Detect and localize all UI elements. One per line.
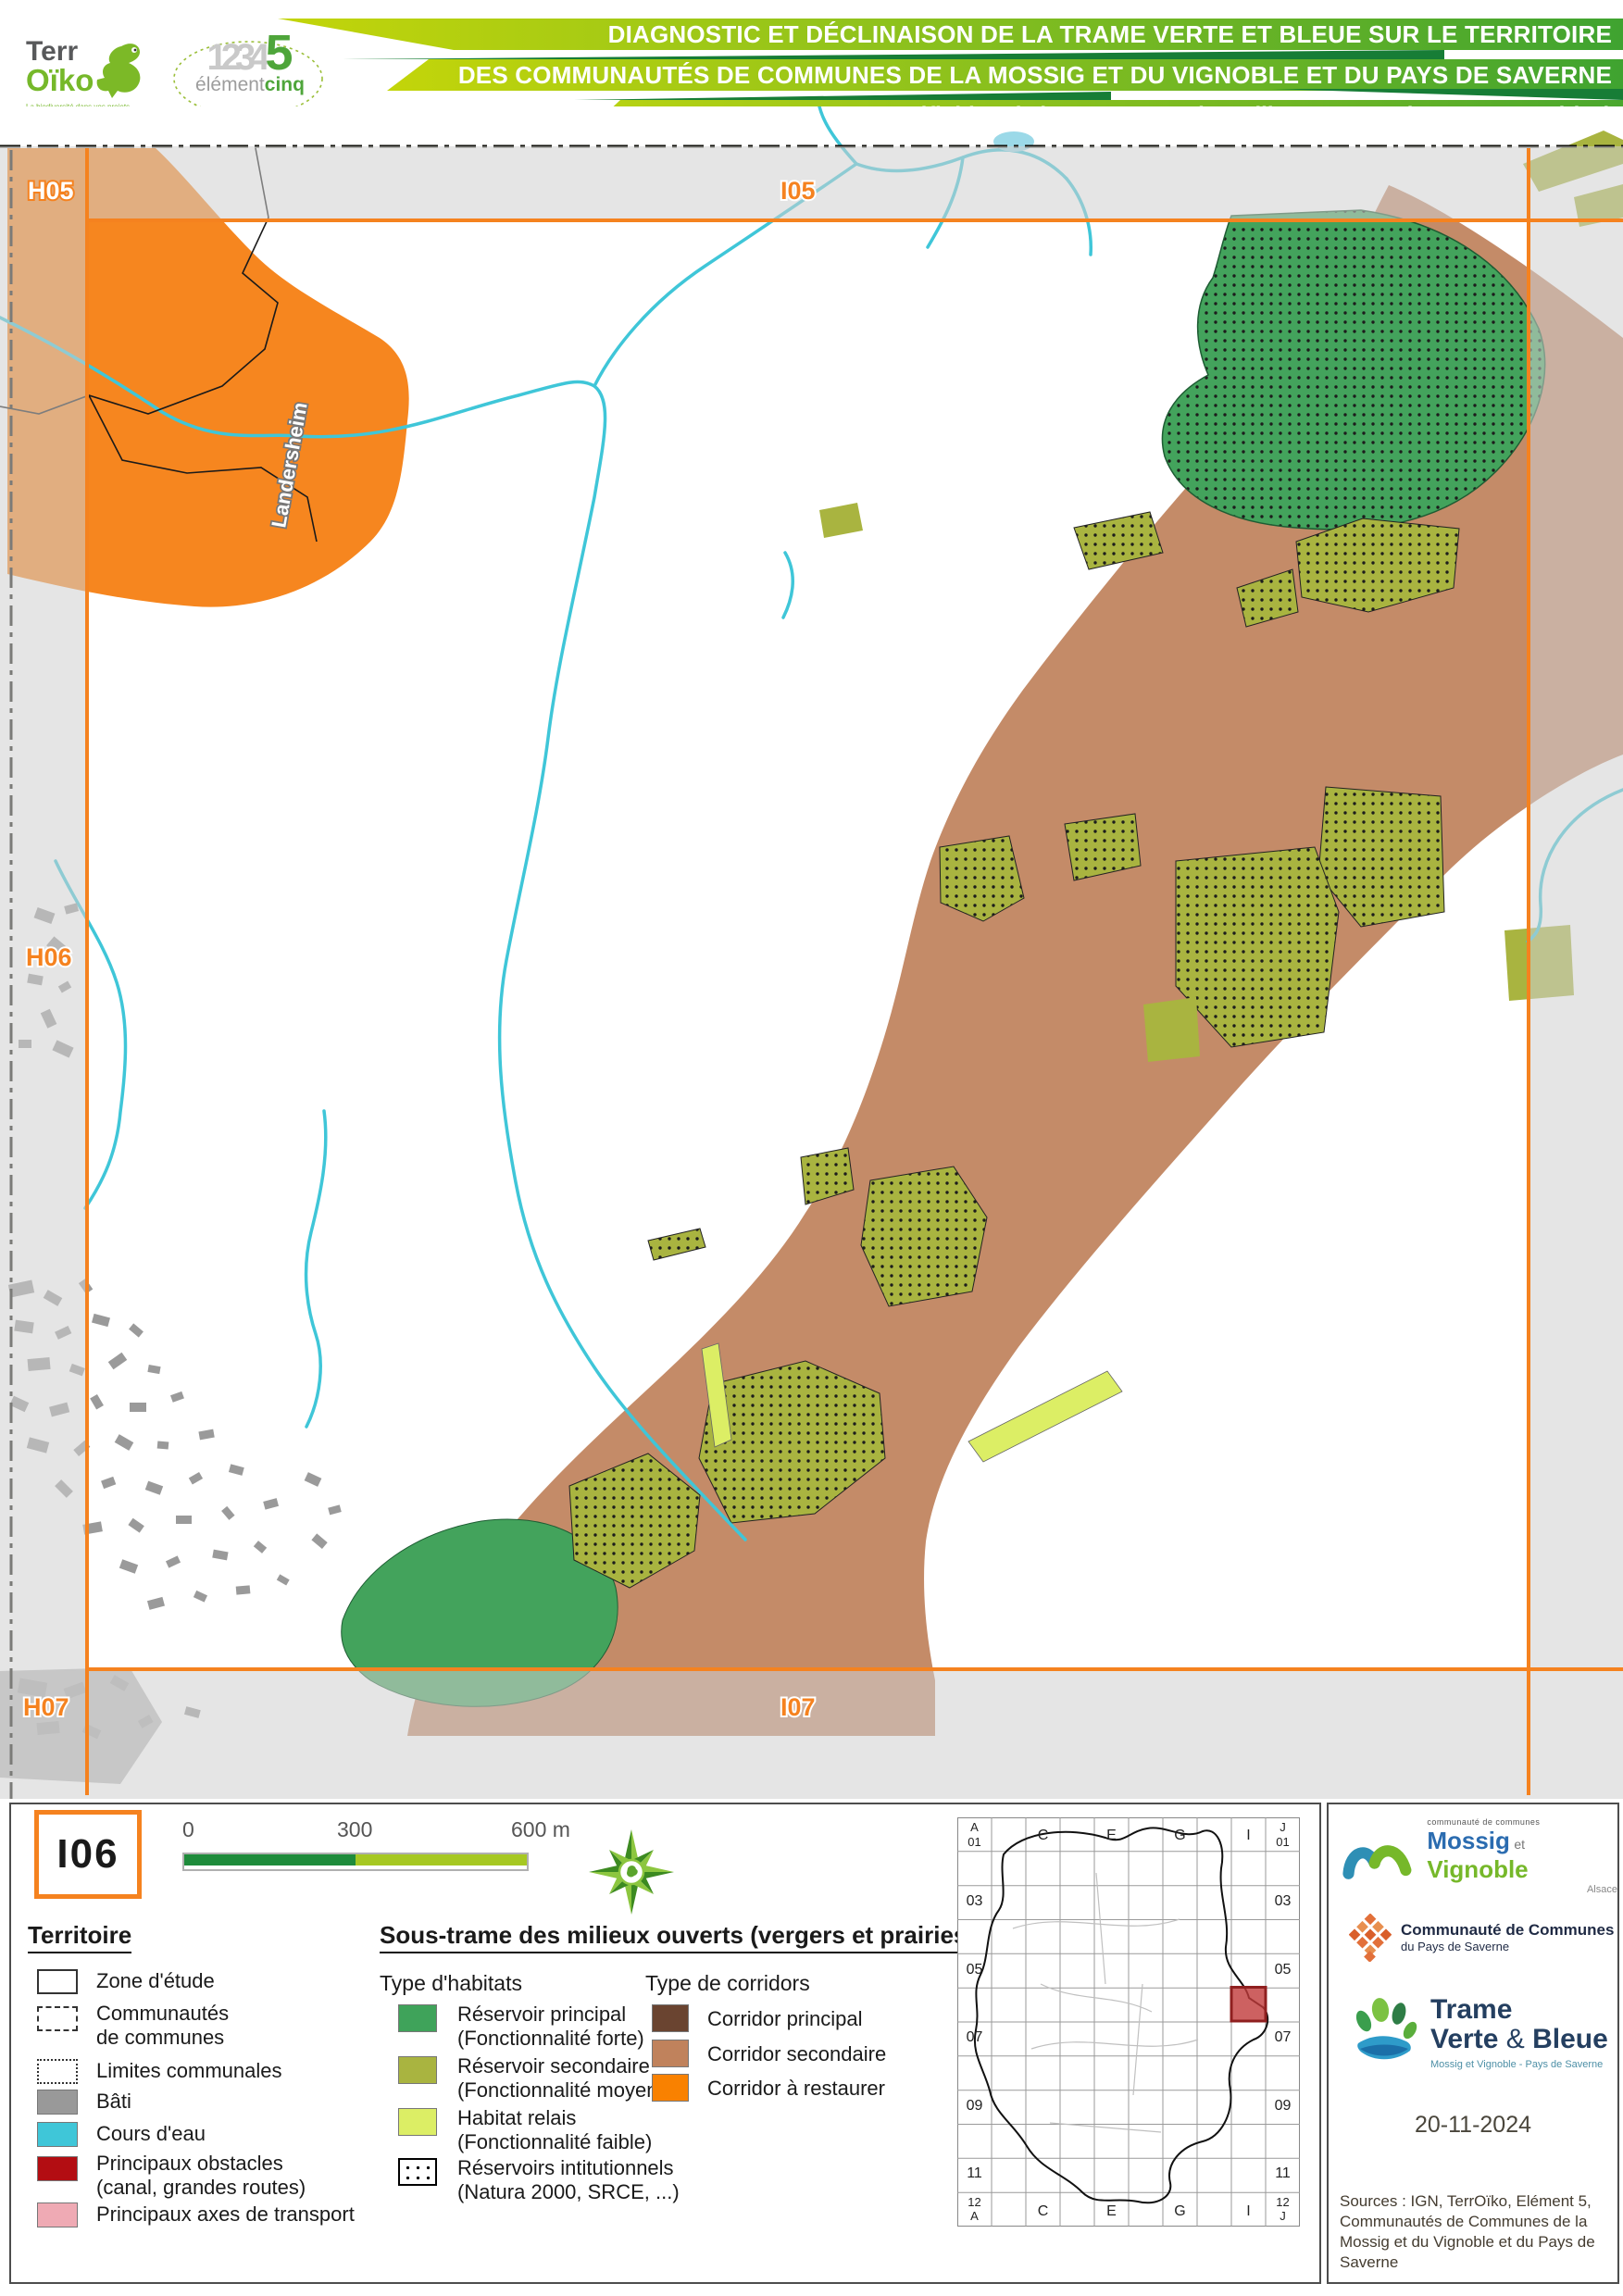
legend-panel: I06 0 300 600 m xyxy=(9,1803,1321,2284)
saverne-name-line2: du Pays de Saverne xyxy=(1401,1940,1614,1953)
legend-swatch-corridor-restaurer xyxy=(652,2074,689,2102)
mossig-name: Mossig xyxy=(1427,1827,1510,1854)
ribbon-accent-2 xyxy=(574,92,1111,100)
svg-text:12: 12 xyxy=(1276,2195,1289,2209)
svg-text:09: 09 xyxy=(967,2098,983,2114)
sheet-label-h06: H06 xyxy=(26,943,72,971)
tvb-subtitle: Mossig et Vignoble - Pays de Saverne xyxy=(1430,2059,1608,2070)
title-line1: DIAGNOSTIC ET DÉCLINAISON DE LA TRAME VE… xyxy=(278,19,1623,50)
legend-swatch-corridor-principal xyxy=(652,2004,689,2032)
territoire-heading: Territoire xyxy=(28,1921,131,1953)
legend-label-axes-transport: Principaux axes de transport xyxy=(96,2202,393,2227)
svg-text:A: A xyxy=(970,2209,979,2223)
svg-text:07: 07 xyxy=(967,2029,983,2045)
svg-text:03: 03 xyxy=(1275,1893,1292,1909)
legend-label-reservoirs-institutionnels: Réservoirs intitutionnels (Natura 2000, … xyxy=(457,2156,698,2204)
title-line2: DES COMMUNAUTÉS DE COMMUNES DE LA MOSSIG… xyxy=(387,59,1623,91)
svg-text:E: E xyxy=(1106,1828,1117,1843)
svg-text:I: I xyxy=(1246,2203,1250,2219)
svg-text:J: J xyxy=(1280,2209,1286,2223)
terroiko-logo: Terr Oïko La biodiversité dans vos proje… xyxy=(26,39,174,111)
svg-text:A: A xyxy=(970,1820,979,1834)
sheet-label-h07: H07 xyxy=(23,1693,69,1721)
tvb-name-line1: Trame xyxy=(1430,1995,1608,2025)
legend-label-zone-etude: Zone d'étude xyxy=(96,1969,356,1993)
terroiko-name-line1: Terr xyxy=(26,39,94,66)
legend-swatch-cours-eau xyxy=(37,2122,78,2147)
svg-text:11: 11 xyxy=(1275,2165,1291,2181)
corridors-heading: Type de corridors xyxy=(645,1971,810,1996)
legend-label-corridor-secondaire: Corridor secondaire xyxy=(707,2042,939,2066)
svg-text:01: 01 xyxy=(1276,1835,1289,1849)
sheet-id: I06 xyxy=(56,1831,119,1878)
mossig-wave-icon xyxy=(1342,1832,1419,1880)
legend-label-habitat-relais: Habitat relais (Fonctionnalité faible) xyxy=(457,2106,689,2154)
inset-current-sheet-highlight xyxy=(1231,1988,1266,2022)
legend-label-communautes: Communautés de communes xyxy=(96,2002,254,2050)
scale-tick-300: 300 xyxy=(337,1817,372,1842)
legend-swatch-zone-etude xyxy=(37,1969,78,1994)
credits-panel: communauté de communes Mossig et Vignobl… xyxy=(1327,1803,1619,2284)
locator-inset-map: A 01 J 01 03 05 07 09 11 03 05 07 09 11 … xyxy=(957,1817,1300,2227)
svg-text:E: E xyxy=(1106,2203,1117,2219)
pays-saverne-logo: Communauté de Communes du Pays de Savern… xyxy=(1349,1914,1614,1962)
legend-label-cours-eau: Cours d'eau xyxy=(96,2122,356,2146)
sheet-id-box: I06 xyxy=(34,1810,142,1899)
legend-swatch-communautes xyxy=(37,2006,78,2031)
sheet-label-i07: I07 xyxy=(780,1693,816,1721)
legend-swatch-bati xyxy=(37,2090,78,2115)
map-sheet-page: Terr Oïko La biodiversité dans vos proje… xyxy=(0,0,1623,2296)
sheet-label-h05: H05 xyxy=(28,177,74,205)
map-canvas: H05 I05 H06 H07 I07 Landersheim xyxy=(0,106,1623,1799)
sheet-label-i05: I05 xyxy=(780,177,816,205)
svg-text:G: G xyxy=(1174,1828,1185,1843)
saverne-mosaic-icon xyxy=(1349,1914,1392,1962)
scale-tick-0: 0 xyxy=(182,1817,194,1842)
sources-text: Sources : IGN, TerrOïko, Elément 5, Comm… xyxy=(1340,2191,1610,2273)
map-date: 20-11-2024 xyxy=(1329,2112,1617,2139)
svg-text:J: J xyxy=(1280,1820,1286,1834)
soustrame-heading: Sous-trame des milieux ouverts (vergers … xyxy=(380,1921,975,1953)
svg-text:11: 11 xyxy=(967,2165,982,2181)
element5-five: 5 xyxy=(265,25,293,81)
legend-label-corridor-principal: Corridor principal xyxy=(707,2007,939,2031)
scale-seg-1 xyxy=(184,1854,356,1865)
legend-swatch-reservoirs-institutionnels xyxy=(398,2158,437,2186)
element5-word: élément xyxy=(195,74,265,95)
mossig-vignoble-logo: communauté de communes Mossig et Vignobl… xyxy=(1342,1817,1617,1895)
tvb-paw-icon xyxy=(1349,1995,1421,2067)
svg-text:03: 03 xyxy=(967,1893,983,1909)
legend-label-limites: Limites communales xyxy=(96,2059,356,2083)
legend-swatch-reservoir-principal xyxy=(398,2004,437,2032)
legend-label-bati: Bâti xyxy=(96,2090,356,2114)
mossig-small-text: communauté de communes xyxy=(1427,1817,1617,1827)
frog-icon xyxy=(94,39,147,100)
svg-text:09: 09 xyxy=(1275,2098,1292,2114)
legend-swatch-limites xyxy=(37,2059,78,2084)
svg-text:C: C xyxy=(1038,2203,1049,2219)
svg-text:C: C xyxy=(1038,1828,1049,1843)
svg-text:05: 05 xyxy=(967,1962,983,1978)
vignoble-name: Vignoble xyxy=(1427,1855,1528,1883)
compass-rose-icon xyxy=(587,1828,676,1916)
legend-swatch-corridor-secondaire xyxy=(652,2040,689,2067)
legend-swatch-habitat-relais xyxy=(398,2108,437,2136)
element5-numbers: 1234 xyxy=(206,37,263,78)
svg-text:01: 01 xyxy=(968,1835,980,1849)
legend-swatch-reservoir-secondaire xyxy=(398,2056,437,2084)
svg-text:05: 05 xyxy=(1275,1962,1292,1978)
legend-swatch-obstacles xyxy=(37,2156,78,2181)
mossig-region: Alsace xyxy=(1427,1884,1617,1895)
element5-word-cinq: cinq xyxy=(265,74,305,95)
legend-label-corridor-restaurer: Corridor à restaurer xyxy=(707,2077,939,2101)
scale-bar-track xyxy=(182,1853,529,1871)
svg-text:12: 12 xyxy=(968,2195,980,2209)
svg-text:07: 07 xyxy=(1275,2029,1292,2045)
scale-tick-600: 600 m xyxy=(511,1817,570,1842)
svg-text:G: G xyxy=(1174,2203,1185,2219)
terroiko-name-line2: Oïko xyxy=(26,66,94,94)
svg-text:I: I xyxy=(1246,1828,1250,1843)
scale-seg-2 xyxy=(356,1854,527,1865)
legend-swatch-axes-transport xyxy=(37,2202,78,2227)
tvb-logo: Trame Verte & Bleue Mossig et Vignoble -… xyxy=(1349,1995,1608,2070)
legend-label-obstacles: Principaux obstacles (canal, grandes rou… xyxy=(96,2152,314,2200)
ribbon-accent-1 xyxy=(343,50,1444,59)
habitats-heading: Type d'habitats xyxy=(380,1971,522,1996)
element5-logo: 12345 élémentcinq xyxy=(181,24,319,96)
saverne-name-line1: Communauté de Communes xyxy=(1401,1922,1614,1940)
